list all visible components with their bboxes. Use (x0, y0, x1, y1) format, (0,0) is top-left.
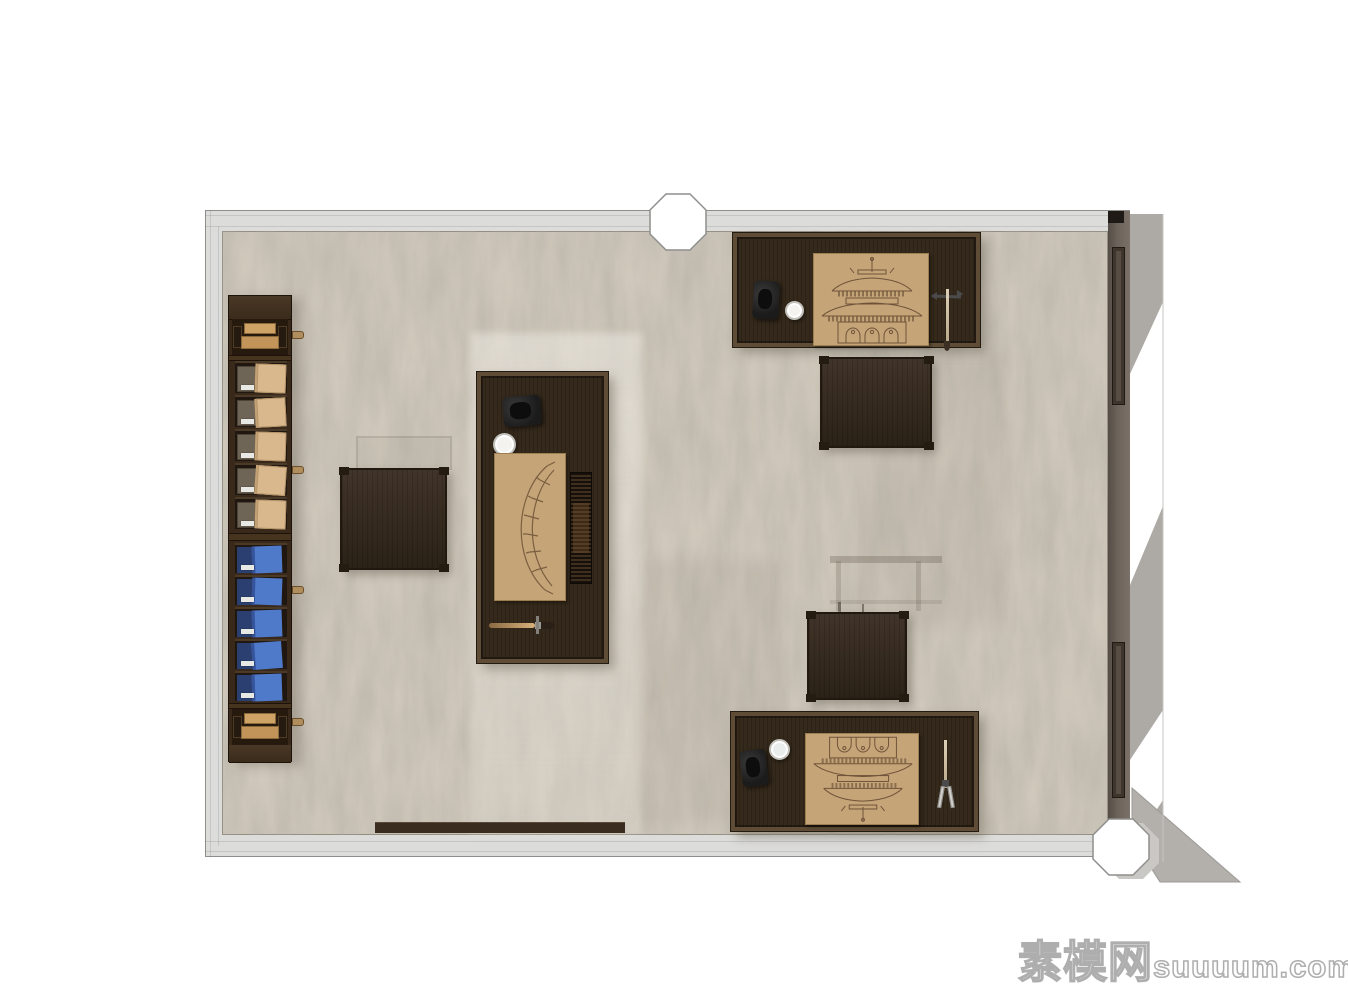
blue-document-box (252, 673, 283, 701)
drawer-front (241, 726, 279, 739)
floor-mark (862, 604, 864, 612)
window-slot (1112, 642, 1125, 798)
ghost-stool-shadow (356, 436, 452, 470)
temple-drawing-sheet (813, 253, 929, 346)
shelf-label (241, 693, 254, 698)
cabinet-shelf-folio (235, 463, 287, 495)
temple-drawing-sheet (805, 733, 919, 825)
top-right-desk (733, 233, 980, 347)
folio-sheet (256, 465, 287, 496)
cabinet-drawer-top (232, 319, 288, 355)
ghost-table-shadow-top (830, 556, 942, 563)
cabinet-drawer-bottom (232, 709, 288, 745)
folio-sheet (257, 432, 287, 462)
stool-top-right (820, 357, 932, 448)
shelf-label (241, 385, 254, 390)
cabinet-shelf-bluebox (235, 575, 287, 605)
wall-molding-line (210, 210, 211, 857)
hanging-brush-stand (931, 283, 963, 351)
cabinet-shelf-bluebox (235, 543, 287, 573)
archive-cabinet (228, 295, 292, 762)
bottom-right-desk (731, 712, 978, 831)
wall-molding-line (218, 226, 219, 846)
wall-molding-line (205, 841, 1130, 842)
divider-compass-tool (935, 740, 957, 810)
cabinet-shelf-folio (235, 361, 287, 393)
low-bench (375, 822, 625, 833)
shelf-label (241, 521, 254, 526)
folio-sheet (256, 397, 286, 427)
cabinet-peg (292, 586, 304, 594)
cabinet-shelf-folio (235, 497, 287, 529)
shelf-label (241, 487, 254, 492)
inkstone (739, 749, 769, 788)
blue-document-box (252, 609, 283, 637)
wall-cast-shadow (1130, 210, 1250, 890)
shelf-label (241, 629, 254, 634)
blue-document-box (251, 641, 283, 670)
water-cup (785, 301, 804, 320)
drawer-front (244, 713, 276, 724)
folio-sheet (257, 500, 287, 530)
blue-document-box (252, 577, 283, 605)
right-wall (1108, 211, 1130, 857)
cabinet-peg (292, 718, 304, 726)
watermark-latin: suuuum.com (1153, 949, 1348, 984)
cabinet-peg (292, 466, 304, 474)
center-desk (477, 372, 608, 663)
ghost-table-shadow-bottom (830, 600, 942, 604)
wall-corner-notch (1108, 211, 1124, 223)
stool-left (340, 468, 447, 570)
bridge-drawing-sheet (494, 453, 566, 601)
wall-molding-line (205, 851, 1130, 852)
drawer-hinge (278, 326, 287, 348)
cabinet-shelf-bluebox (235, 671, 287, 701)
bridge-drawing (495, 454, 567, 602)
shelf-label (241, 453, 254, 458)
water-cup (769, 739, 790, 760)
cabinet-top-cap (229, 296, 291, 320)
cabinet-shelf-bluebox (235, 639, 287, 669)
cabinet-shelf-folio (235, 395, 287, 427)
octagon-column-bottom-right (1092, 816, 1168, 882)
shelf-label (241, 565, 254, 570)
floor-mark (838, 602, 841, 612)
stool-bottom-right (807, 612, 907, 700)
window-slot (1112, 247, 1125, 405)
writing-brush (489, 616, 555, 636)
shelf-label (241, 419, 254, 424)
drawer-hinge (278, 716, 287, 738)
shelf-label (241, 597, 254, 602)
inkstone (502, 394, 542, 427)
drawer-front (241, 336, 279, 349)
bamboo-slat-scroll (570, 472, 592, 584)
folio-sheet (257, 364, 287, 394)
watermark-cjk: 素模网 (1018, 938, 1153, 987)
cabinet-shelf-folio (235, 429, 287, 461)
temple-drawing (806, 734, 920, 825)
octagon-column-top (649, 193, 707, 251)
temple-drawing (814, 254, 930, 346)
blue-document-box (252, 545, 283, 573)
cabinet-bottom-cap (229, 745, 291, 763)
watermark: 素模网suuuum.com (1018, 926, 1348, 990)
shelf-label (241, 661, 254, 666)
inkstone (752, 280, 780, 319)
render-canvas: 素模网suuuum.com (0, 0, 1348, 1000)
cabinet-shelf-bluebox (235, 607, 287, 637)
cabinet-divider (229, 533, 291, 541)
cabinet-peg (292, 331, 304, 339)
drawer-front (244, 323, 276, 334)
